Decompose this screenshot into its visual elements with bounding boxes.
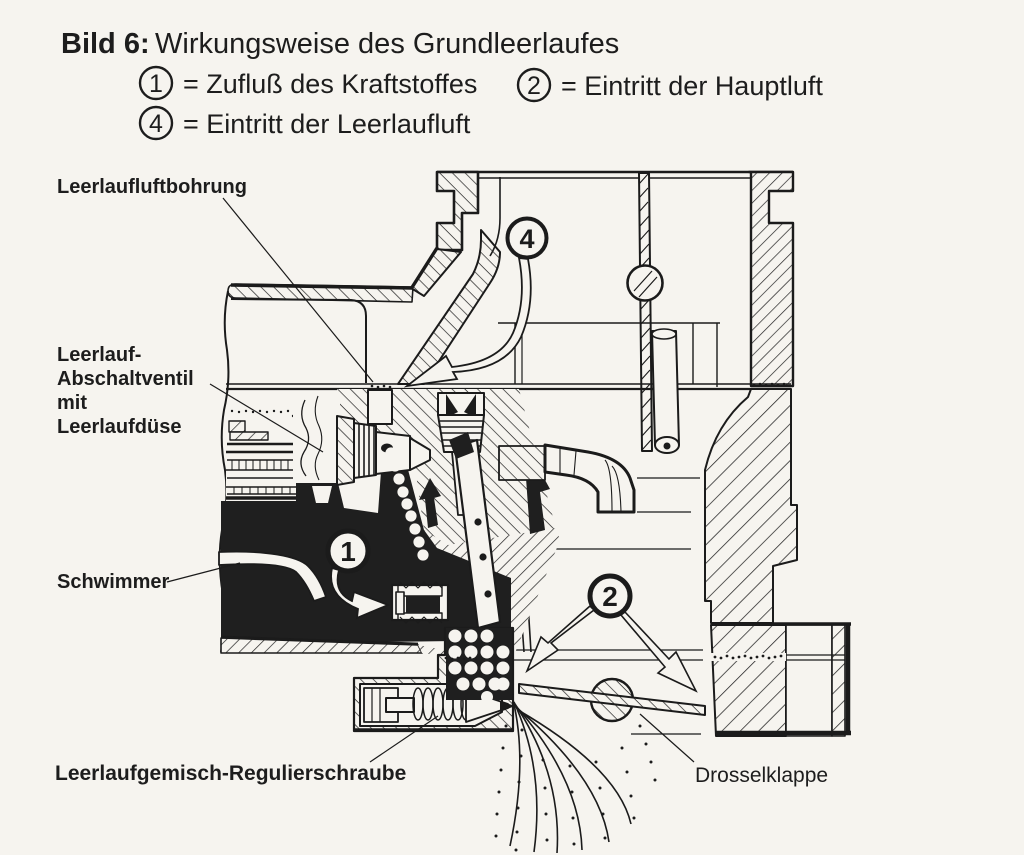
svg-text:= Eintritt der Hauptluft: = Eintritt der Hauptluft <box>561 71 823 101</box>
svg-text:mit: mit <box>57 392 87 414</box>
svg-text:Abschaltventil: Abschaltventil <box>57 368 194 390</box>
svg-text:= Zufluß des Kraftstoffes: = Zufluß des Kraftstoffes <box>183 69 477 99</box>
svg-text:4: 4 <box>149 110 163 138</box>
svg-text:Leerlauf-: Leerlauf- <box>57 344 141 366</box>
svg-text:Leerlaufluftbohrung: Leerlaufluftbohrung <box>57 176 247 198</box>
svg-text:= Eintritt der Leerlaufluft: = Eintritt der Leerlaufluft <box>183 109 471 139</box>
svg-text:2: 2 <box>527 72 541 100</box>
svg-text:1: 1 <box>149 70 163 98</box>
svg-text:Schwimmer: Schwimmer <box>57 571 169 593</box>
svg-text:1: 1 <box>340 536 356 567</box>
svg-text:Drosselklappe: Drosselklappe <box>695 764 828 787</box>
svg-text:Leerlaufgemisch-Regulierschrau: Leerlaufgemisch-Regulierschraube <box>55 762 406 785</box>
svg-text:Bild 6:: Bild 6: <box>61 28 150 60</box>
svg-text:Leerlaufdüse: Leerlaufdüse <box>57 416 181 438</box>
svg-text:2: 2 <box>602 581 618 612</box>
svg-text:4: 4 <box>519 224 534 254</box>
svg-text:Wirkungsweise des Grundleerlau: Wirkungsweise des Grundleerlaufes <box>155 28 619 60</box>
